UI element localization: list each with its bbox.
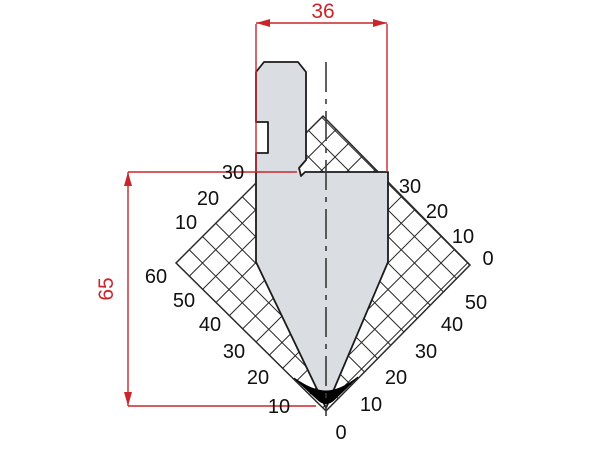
scale-label: 50 <box>173 290 195 312</box>
scale-label: 20 <box>247 367 269 389</box>
scale-label: 30 <box>415 341 437 363</box>
scale-label-zero-bottom: 0 <box>335 422 346 444</box>
scale-label: 20 <box>385 367 407 389</box>
scale-label: 60 <box>145 266 167 288</box>
scale-label: 30 <box>222 162 244 184</box>
scale-label: 30 <box>223 341 245 363</box>
scale-label: 30 <box>399 176 421 198</box>
scale-label: 10 <box>452 226 474 248</box>
punch-drawing: 36 65 30 20 10 60 50 40 30 20 10 30 20 1… <box>0 0 600 450</box>
arrow-left-icon <box>256 19 270 27</box>
scale-label: 10 <box>268 396 290 418</box>
width-dimension-value: 36 <box>311 0 334 23</box>
arrow-down-icon <box>124 392 132 406</box>
scale-label: 20 <box>426 201 448 223</box>
scale-label: 40 <box>199 314 221 336</box>
scale-label: 0 <box>482 248 493 270</box>
scale-label: 50 <box>465 292 487 314</box>
scale-label: 40 <box>441 314 463 336</box>
technical-drawing-canvas: 36 65 30 20 10 60 50 40 30 20 10 30 20 1… <box>0 0 600 450</box>
scale-label: 20 <box>197 188 219 210</box>
height-dimension-value: 65 <box>95 277 118 300</box>
arrow-right-icon <box>373 19 387 27</box>
scale-label: 10 <box>360 394 382 416</box>
arrow-up-icon <box>124 172 132 186</box>
scale-label: 10 <box>175 212 197 234</box>
